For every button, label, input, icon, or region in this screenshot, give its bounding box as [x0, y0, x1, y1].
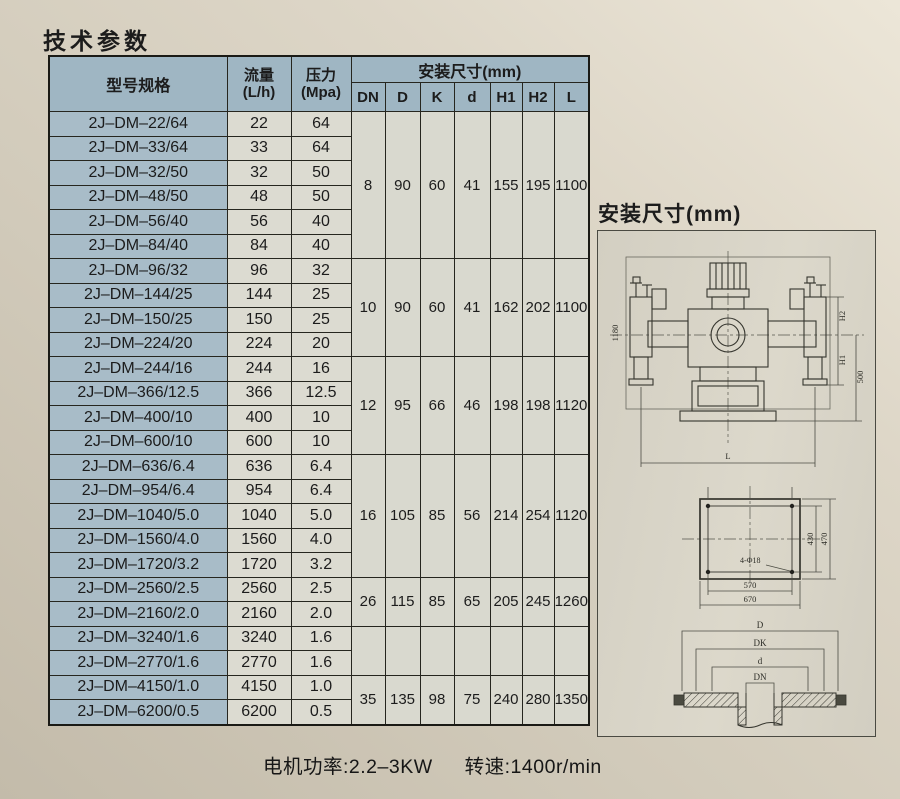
dim-label-1180: 1180 — [610, 325, 620, 342]
flow-cell: 600 — [227, 430, 291, 455]
dim-label-h2: H2 — [837, 311, 847, 321]
left-foot — [629, 379, 653, 385]
dim-h2-cell: 195 — [522, 112, 554, 259]
model-cell: 2J–DM–48/50 — [49, 185, 227, 210]
table-row: 2J–DM–244/1624416129566461981981120 — [49, 357, 589, 382]
speed-note: 转速:1400r/min — [465, 750, 602, 779]
dim-k-cell — [420, 626, 454, 675]
flow-cell: 636 — [227, 455, 291, 480]
dim-label-570: 570 — [744, 580, 757, 590]
pressure-cell: 25 — [291, 283, 351, 308]
header-dim-k: K — [420, 83, 454, 112]
header-dim-dn: DN — [351, 83, 385, 112]
model-cell: 2J–DM–636/6.4 — [49, 455, 227, 480]
dim-dn-cell: 26 — [351, 577, 385, 626]
model-cell: 2J–DM–33/64 — [49, 136, 227, 161]
flow-cell: 954 — [227, 479, 291, 504]
model-cell: 2J–DM–224/20 — [49, 332, 227, 357]
dimension-lines — [641, 297, 862, 467]
flow-cell: 1720 — [227, 553, 291, 578]
motor-power-note: 电机功率:2.2–3KW — [263, 750, 433, 779]
dim-h1-cell: 214 — [490, 455, 522, 578]
dim-label-430: 430 — [805, 533, 815, 546]
left-head — [630, 297, 652, 357]
dim-label-470: 470 — [819, 533, 829, 546]
dim-h2-cell: 280 — [522, 675, 554, 725]
flow-cell: 96 — [227, 259, 291, 284]
header-dim-l: L — [554, 83, 589, 112]
base-plan-view-diagram: 570 670 430 470 4-Φ18 — [600, 485, 873, 613]
right-arm — [768, 321, 816, 347]
model-cell: 2J–DM–366/12.5 — [49, 381, 227, 406]
dim-l-cell: 1100 — [554, 259, 589, 357]
dim-d-cell: 90 — [385, 259, 420, 357]
dim-h1-cell: 205 — [490, 577, 522, 626]
flow-cell: 56 — [227, 210, 291, 235]
pressure-cell: 50 — [291, 185, 351, 210]
model-cell: 2J–DM–144/25 — [49, 283, 227, 308]
dim-label-l: L — [725, 451, 730, 461]
flow-cell: 400 — [227, 406, 291, 431]
header-dim-d-lower: d — [454, 83, 490, 112]
dim-h2-cell — [522, 626, 554, 675]
flange-label-dk: DK — [754, 638, 767, 648]
dim-h1-cell: 155 — [490, 112, 522, 259]
model-cell: 2J–DM–56/40 — [49, 210, 227, 235]
table-header: 型号规格 流量 (L/h) 压力 (Mpa) 安装尺寸(mm) DN D K d… — [49, 56, 589, 112]
pressure-cell: 1.0 — [291, 675, 351, 700]
pressure-cell: 3.2 — [291, 553, 351, 578]
model-cell: 2J–DM–3240/1.6 — [49, 626, 227, 651]
model-cell: 2J–DM–400/10 — [49, 406, 227, 431]
dim-l-cell: 1100 — [554, 112, 589, 259]
pressure-cell: 40 — [291, 234, 351, 259]
dim-d-cell: 95 — [385, 357, 420, 455]
model-cell: 2J–DM–96/32 — [49, 259, 227, 284]
pressure-cell: 10 — [291, 430, 351, 455]
left-lower-column — [634, 357, 648, 379]
flow-cell: 1040 — [227, 504, 291, 529]
dim-k-cell: 60 — [420, 259, 454, 357]
pressure-cell: 16 — [291, 357, 351, 382]
model-cell: 2J–DM–600/10 — [49, 430, 227, 455]
dim-l-cell: 1350 — [554, 675, 589, 725]
dim-h2-cell: 198 — [522, 357, 554, 455]
dim-h1-cell: 240 — [490, 675, 522, 725]
pressure-cell: 25 — [291, 308, 351, 333]
flow-cell: 1560 — [227, 528, 291, 553]
header-dim-d-upper: D — [385, 83, 420, 112]
flow-cell: 6200 — [227, 700, 291, 725]
pressure-cell: 5.0 — [291, 504, 351, 529]
pressure-cell: 4.0 — [291, 528, 351, 553]
header-pressure: 压力 (Mpa) — [291, 56, 351, 112]
left-valve-box — [652, 289, 666, 309]
dim-dsmall-cell: 41 — [454, 112, 490, 259]
flow-cell: 366 — [227, 381, 291, 406]
flow-cell: 2560 — [227, 577, 291, 602]
dim-dsmall-cell — [454, 626, 490, 675]
flow-cell: 32 — [227, 161, 291, 186]
dim-label-h1: H1 — [837, 355, 847, 365]
flow-cell: 150 — [227, 308, 291, 333]
model-cell: 2J–DM–244/16 — [49, 357, 227, 382]
header-dim-h2: H2 — [522, 83, 554, 112]
dim-k-cell: 85 — [420, 577, 454, 626]
header-flow-line2: (L/h) — [228, 84, 291, 101]
pressure-cell: 20 — [291, 332, 351, 357]
flange-label-dn: DN — [754, 672, 767, 682]
header-flow-line1: 流量 — [228, 67, 291, 84]
dim-dn-cell — [351, 626, 385, 675]
dim-dsmall-cell: 75 — [454, 675, 490, 725]
model-cell: 2J–DM–84/40 — [49, 234, 227, 259]
table-row: 2J–DM–96/329632109060411622021100 — [49, 259, 589, 284]
pressure-cell: 2.0 — [291, 602, 351, 627]
flow-cell: 224 — [227, 332, 291, 357]
dim-dn-cell: 8 — [351, 112, 385, 259]
model-cell: 2J–DM–6200/0.5 — [49, 700, 227, 725]
dim-l-cell: 1260 — [554, 577, 589, 626]
right-lower-column — [808, 357, 822, 379]
model-cell: 2J–DM–32/50 — [49, 161, 227, 186]
dim-dn-cell: 16 — [351, 455, 385, 578]
dim-h1-cell: 162 — [490, 259, 522, 357]
spec-table: 型号规格 流量 (L/h) 压力 (Mpa) 安装尺寸(mm) DN D K d… — [48, 55, 590, 726]
dim-dn-cell: 10 — [351, 259, 385, 357]
right-foot — [803, 379, 827, 385]
footer-note: 电机功率:2.2–3KW 转速:1400r/min — [263, 750, 602, 779]
pressure-cell: 1.6 — [291, 626, 351, 651]
dim-label-670: 670 — [744, 594, 757, 604]
model-cell: 2J–DM–2770/1.6 — [49, 651, 227, 676]
table-row: 2J–DM–4150/1.041501.03513598752402801350 — [49, 675, 589, 700]
header-model: 型号规格 — [49, 56, 227, 112]
pipe-wall-right — [774, 707, 782, 725]
flange-label-d-small: d — [758, 656, 763, 666]
right-valve-box — [790, 289, 804, 309]
flow-cell: 4150 — [227, 675, 291, 700]
table-row: 2J–DM–3240/1.632401.6 — [49, 626, 589, 651]
flow-cell: 84 — [227, 234, 291, 259]
holes-callout: 4-Φ18 — [740, 556, 761, 565]
dim-l-cell — [554, 626, 589, 675]
pressure-cell: 1.6 — [291, 651, 351, 676]
install-dims-title: 安装尺寸(mm) — [598, 198, 741, 228]
dim-h2-cell: 202 — [522, 259, 554, 357]
flow-cell: 144 — [227, 283, 291, 308]
dim-l-cell: 1120 — [554, 357, 589, 455]
table-row: 2J–DM–636/6.46366.41610585562142541120 — [49, 455, 589, 480]
pressure-cell: 0.5 — [291, 700, 351, 725]
flow-cell: 244 — [227, 357, 291, 382]
pressure-cell: 50 — [291, 161, 351, 186]
header-dim-h1: H1 — [490, 83, 522, 112]
right-head — [804, 297, 826, 357]
dim-h2-cell: 254 — [522, 455, 554, 578]
dim-h1-cell — [490, 626, 522, 675]
pump-front-view-diagram: 1180 H2 H1 500 L — [600, 237, 873, 481]
table-row: 2J–DM–2560/2.525602.52611585652052451260 — [49, 577, 589, 602]
pressure-cell: 6.4 — [291, 479, 351, 504]
pressure-cell: 12.5 — [291, 381, 351, 406]
model-cell: 2J–DM–1040/5.0 — [49, 504, 227, 529]
right-bolt-end — [836, 695, 846, 705]
flow-cell: 2770 — [227, 651, 291, 676]
dim-dsmall-cell: 41 — [454, 259, 490, 357]
dim-dn-cell: 35 — [351, 675, 385, 725]
flow-cell: 3240 — [227, 626, 291, 651]
dim-d-cell: 90 — [385, 112, 420, 259]
dim-dsmall-cell: 46 — [454, 357, 490, 455]
model-cell: 2J–DM–4150/1.0 — [49, 675, 227, 700]
pressure-cell: 64 — [291, 136, 351, 161]
model-cell: 2J–DM–2160/2.0 — [49, 602, 227, 627]
header-flow: 流量 (L/h) — [227, 56, 291, 112]
pressure-cell: 10 — [291, 406, 351, 431]
table-row: 2J–DM–22/64226489060411551951100 — [49, 112, 589, 137]
dim-d-cell: 115 — [385, 577, 420, 626]
dim-d-cell: 105 — [385, 455, 420, 578]
flow-cell: 22 — [227, 112, 291, 137]
dim-k-cell: 60 — [420, 112, 454, 259]
dim-k-cell: 98 — [420, 675, 454, 725]
flange-label-d-outer: D — [757, 620, 764, 630]
dim-l-cell: 1120 — [554, 455, 589, 578]
pressure-cell: 64 — [291, 112, 351, 137]
model-cell: 2J–DM–1720/3.2 — [49, 553, 227, 578]
drawing-panel: 1180 H2 H1 500 L — [597, 230, 876, 737]
table-body: 2J–DM–22/642264890604115519511002J–DM–33… — [49, 112, 589, 725]
left-bolt-end — [674, 695, 684, 705]
pressure-cell: 40 — [291, 210, 351, 235]
left-arm — [648, 321, 688, 347]
header-pressure-line1: 压力 — [292, 67, 351, 84]
dim-label-500: 500 — [855, 371, 865, 384]
pressure-cell: 32 — [291, 259, 351, 284]
model-cell: 2J–DM–1560/4.0 — [49, 528, 227, 553]
flow-cell: 33 — [227, 136, 291, 161]
header-pressure-line2: (Mpa) — [292, 84, 351, 101]
pressure-cell: 6.4 — [291, 455, 351, 480]
flange-section-diagram: D DK d DN — [600, 615, 873, 730]
dim-d-cell — [385, 626, 420, 675]
flow-cell: 2160 — [227, 602, 291, 627]
model-cell: 2J–DM–954/6.4 — [49, 479, 227, 504]
dim-dsmall-cell: 56 — [454, 455, 490, 578]
header-install-dims: 安装尺寸(mm) — [351, 56, 589, 83]
model-cell: 2J–DM–22/64 — [49, 112, 227, 137]
dim-h1-cell: 198 — [490, 357, 522, 455]
page-title: 技术参数 — [43, 22, 151, 56]
dim-k-cell: 66 — [420, 357, 454, 455]
pressure-cell: 2.5 — [291, 577, 351, 602]
dim-h2-cell: 245 — [522, 577, 554, 626]
dim-d-cell: 135 — [385, 675, 420, 725]
model-cell: 2J–DM–150/25 — [49, 308, 227, 333]
dim-dsmall-cell: 65 — [454, 577, 490, 626]
flow-cell: 48 — [227, 185, 291, 210]
model-cell: 2J–DM–2560/2.5 — [49, 577, 227, 602]
flange-body — [674, 693, 846, 728]
dim-dn-cell: 12 — [351, 357, 385, 455]
dim-k-cell: 85 — [420, 455, 454, 578]
plan-dimension-lines — [700, 487, 836, 609]
pipe-wall-left — [738, 707, 746, 725]
